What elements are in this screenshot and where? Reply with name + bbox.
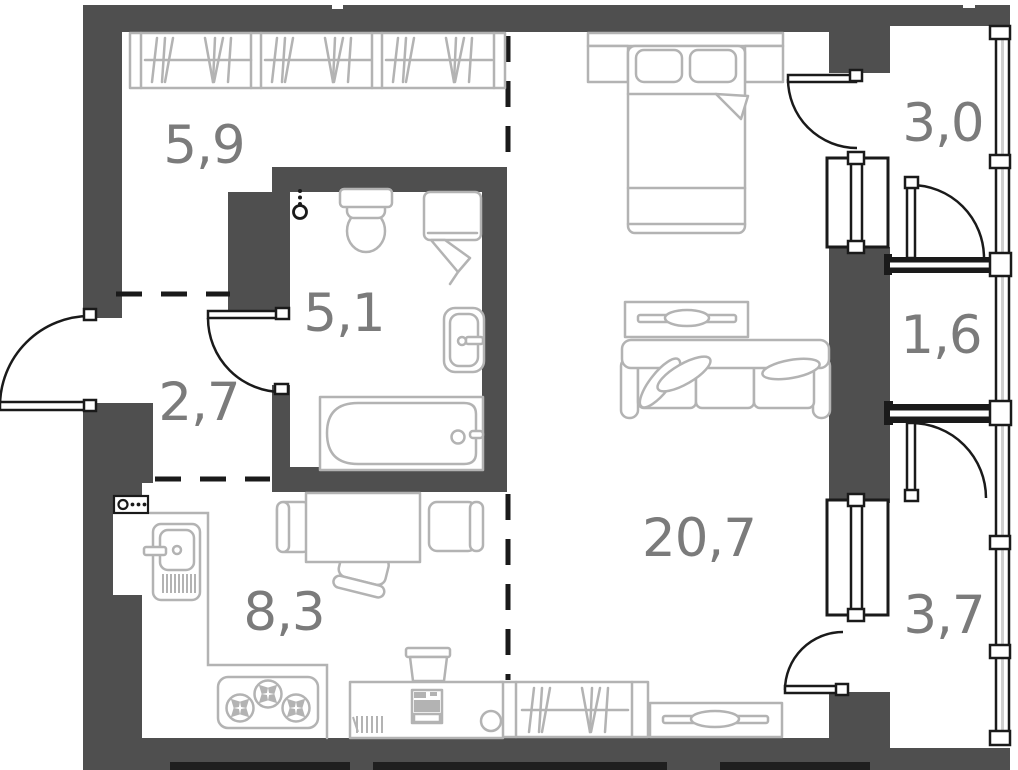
room-label-living-room: 20,7 — [642, 508, 756, 569]
kitchen-counter-appliances — [350, 648, 503, 738]
wardrobe-symbol — [130, 33, 505, 88]
wall-balcony-top — [890, 5, 1010, 26]
counter-sink-symbol — [481, 711, 501, 731]
room-label-balcony-middle: 1,6 — [900, 305, 981, 366]
balcony-divider-lower-door — [905, 423, 986, 501]
door-jamb — [275, 384, 288, 394]
room-label-wardrobe-hall: 5,9 — [163, 115, 244, 176]
tv-stand-symbol — [625, 302, 748, 337]
wall-right-upper-block — [829, 5, 890, 73]
room-label-kitchen: 8,3 — [243, 582, 324, 643]
bathroom-sink-symbol — [444, 308, 484, 372]
entrance-door — [0, 309, 96, 411]
balcony-divider-upper-door — [905, 177, 984, 258]
glazing-joint — [990, 26, 1010, 39]
glazing-joint — [990, 536, 1010, 549]
door-jamb — [905, 490, 918, 501]
wall-balcony-bottom — [890, 748, 1010, 770]
floor-plan: 5,9 5,1 2,7 8,3 20,7 3,0 1,6 3,7 — [0, 0, 1018, 770]
door-leaf — [0, 402, 88, 410]
door-jamb — [836, 684, 848, 695]
toilet-symbol — [340, 189, 392, 252]
axis-mark — [963, 0, 975, 8]
window-upper — [827, 152, 888, 253]
door-jamb — [276, 308, 289, 319]
door-jamb — [905, 177, 918, 188]
glazing-joint — [990, 253, 1011, 276]
door-leaf — [208, 311, 283, 318]
wall-left-pier — [83, 403, 153, 483]
drainboard — [163, 574, 195, 593]
bathroom-wall-right — [482, 167, 507, 492]
room-label-balcony-upper: 3,0 — [902, 93, 983, 154]
washing-machine-symbol — [424, 192, 481, 284]
floor-plan-canvas: 5,9 5,1 2,7 8,3 20,7 3,0 1,6 3,7 — [0, 0, 1018, 770]
axis-mark — [332, 0, 343, 9]
wall-right-mid-block — [829, 247, 890, 503]
plumbing-riser-icon — [294, 189, 307, 219]
wardrobe-symbol-2 — [500, 682, 648, 737]
door-jamb — [84, 400, 96, 411]
door-leaf — [907, 423, 915, 497]
balcony-glazing — [990, 26, 1011, 745]
pillow — [636, 50, 682, 82]
balcony-upper-door — [788, 70, 862, 148]
glazing-joint — [990, 645, 1010, 658]
sofa-symbol — [621, 340, 830, 418]
balcony-lower-door — [785, 632, 848, 695]
chair-back — [470, 502, 483, 551]
plan-edge-mark — [170, 762, 350, 770]
gas-hob-symbol — [218, 677, 318, 728]
chair-back — [277, 502, 289, 552]
dining-table-symbol — [306, 493, 420, 562]
room-label-balcony-lower: 3,7 — [903, 585, 984, 646]
room-label-entry-hall: 2,7 — [158, 372, 239, 433]
plan-edge-mark — [373, 762, 667, 770]
glazing-joint — [990, 731, 1010, 745]
door-jamb — [850, 70, 862, 81]
bathtub-symbol — [320, 397, 483, 470]
room-label-bathroom: 5,1 — [303, 283, 384, 344]
glazing-joint — [990, 401, 1011, 425]
wall-right-lower-block — [829, 692, 890, 770]
wall-left-upper — [83, 5, 122, 318]
glazing-joint — [990, 155, 1010, 168]
dish-rack-symbol — [353, 716, 382, 733]
bed-symbol — [588, 33, 783, 233]
faucet-icon — [466, 337, 483, 344]
plan-edge-mark — [720, 762, 870, 770]
faucet-icon — [144, 547, 166, 555]
tv-stand-symbol-2 — [650, 703, 782, 737]
door-leaf — [907, 183, 915, 258]
wall-top — [83, 5, 890, 32]
door-leaf — [788, 75, 856, 82]
door-leaf — [785, 686, 843, 693]
kitchen-sink-symbol — [144, 524, 200, 600]
oven-symbol — [412, 690, 442, 723]
bar-stool-symbol — [406, 648, 450, 681]
door-jamb — [84, 309, 96, 320]
gas-riser-icon — [114, 496, 148, 513]
pillow — [690, 50, 736, 82]
faucet-icon — [470, 431, 483, 438]
window-lower — [827, 494, 888, 621]
bathroom-wall-left-block — [228, 192, 290, 312]
